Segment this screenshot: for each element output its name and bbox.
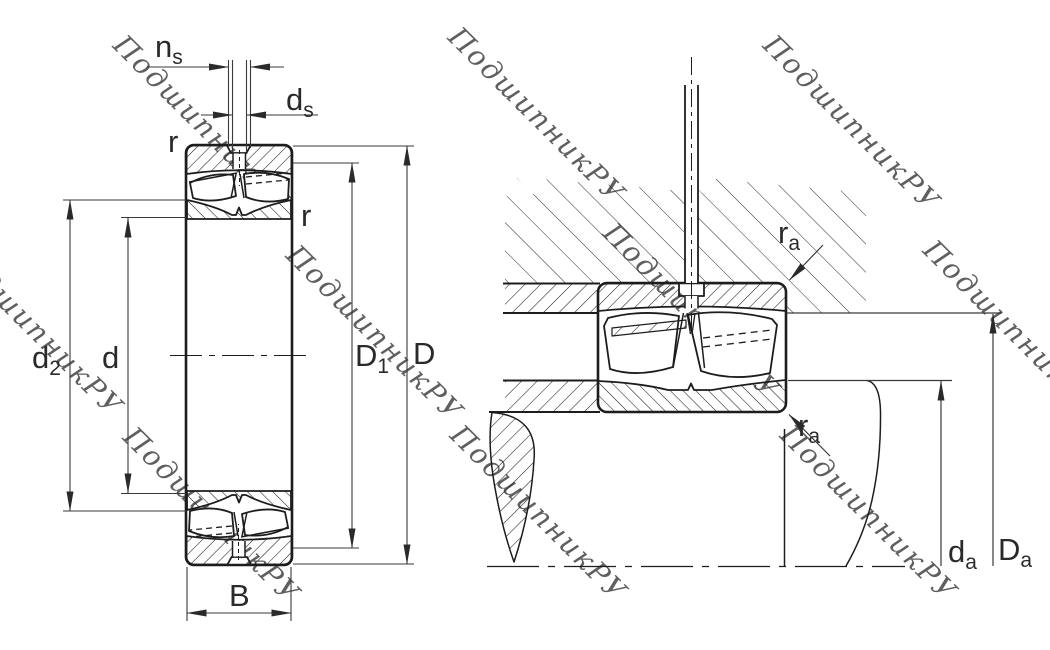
dim-label-ra-bottom: ra [798,408,820,448]
inner-ring-section-mounted [598,380,786,412]
label-ns-sub: s [172,46,183,69]
dim-label-ds: ds [286,82,314,122]
watermark-text: ПодшипникРУ [441,20,632,211]
dim-label-ns: ns [155,29,183,69]
label-ra-bottom-base: r [798,408,808,443]
label-d2-base: d [32,340,49,375]
roller-left [190,174,236,200]
label-ds-sub: s [303,99,314,122]
label-ds-base: d [286,82,303,117]
label-ra-top-sub: a [788,232,800,255]
watermark-text: ПодшипникРУ [916,233,1050,424]
label-ra-top-base: r [778,215,788,250]
dim-label-B: B [229,578,250,613]
label-da-sub: a [965,551,977,574]
watermark-text: ПодшипникРУ [443,418,634,609]
label-D1-sub: 1 [377,355,389,378]
label-ns-base: n [155,29,172,64]
bearing-drawing-canvas: ПодшипникРУ ПодшипникРУ ПодшипникРУ Подш… [0,0,1050,650]
dim-label-r-side: r [301,198,311,233]
shaft-shoulder-section [505,381,598,412]
dim-label-da: da [948,534,977,574]
label-d2-sub: 2 [49,357,61,380]
watermark-text: ПодшипникРУ [0,233,130,424]
dim-label-D: D [413,336,435,371]
label-ra-bottom-sub: a [808,425,820,448]
dim-label-d: d [102,340,119,375]
watermark-text: ПодшипникРУ [279,238,470,429]
shaft-fillet-partial-section [490,413,534,563]
dim-label-Da: Da [998,532,1032,572]
left-figure-bearing-section [170,145,306,565]
dim-label-r-top: r [168,124,178,159]
label-da-base: d [948,534,965,569]
technical-drawing: ПодшипникРУ ПодшипникРУ ПодшипникРУ Подш… [0,0,1050,650]
label-Da-sub: a [1020,549,1032,572]
label-Da-base: D [998,532,1020,567]
housing-shoulder-section [505,284,598,313]
label-D1-base: D [355,338,377,373]
